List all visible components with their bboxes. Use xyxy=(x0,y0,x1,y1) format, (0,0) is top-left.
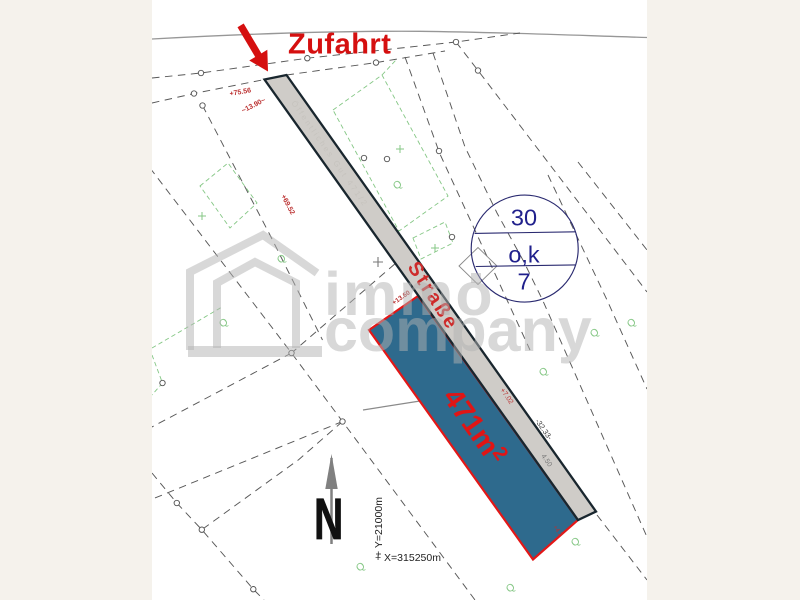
svg-text:+ Y=21000m: + Y=21000m xyxy=(373,497,385,557)
svg-text:30: 30 xyxy=(511,205,537,231)
svg-text:N: N xyxy=(314,487,343,552)
svg-text:company: company xyxy=(324,296,592,364)
svg-text:o,k: o,k xyxy=(508,242,540,268)
svg-text:+ X=315250m: + X=315250m xyxy=(375,552,441,564)
svg-text:7: 7 xyxy=(517,269,530,295)
svg-text:Zufahrt: Zufahrt xyxy=(288,28,391,60)
